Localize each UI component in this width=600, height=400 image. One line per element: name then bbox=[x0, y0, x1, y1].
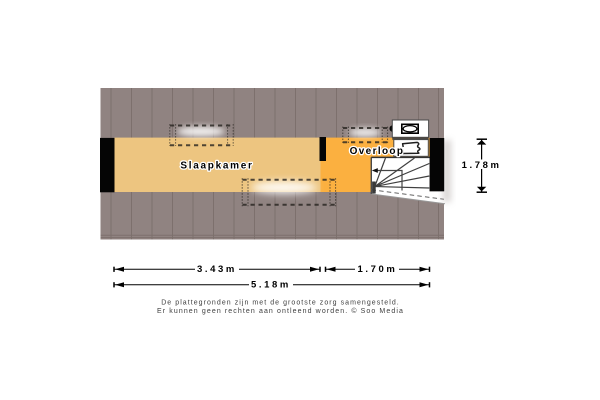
svg-text:Overloop: Overloop bbox=[350, 146, 405, 157]
svg-text:Er kunnen geen rechten aan ont: Er kunnen geen rechten aan ontleend word… bbox=[157, 307, 404, 315]
svg-text:1.78m: 1.78m bbox=[462, 160, 502, 171]
svg-text:De plattegronden zijn met de g: De plattegronden zijn met de grootste zo… bbox=[161, 300, 400, 307]
svg-text:1.70m: 1.70m bbox=[358, 264, 398, 275]
svg-text:Slaapkamer: Slaapkamer bbox=[180, 160, 253, 171]
svg-text:5.18m: 5.18m bbox=[251, 280, 291, 291]
svg-text:3.43m: 3.43m bbox=[197, 264, 237, 275]
